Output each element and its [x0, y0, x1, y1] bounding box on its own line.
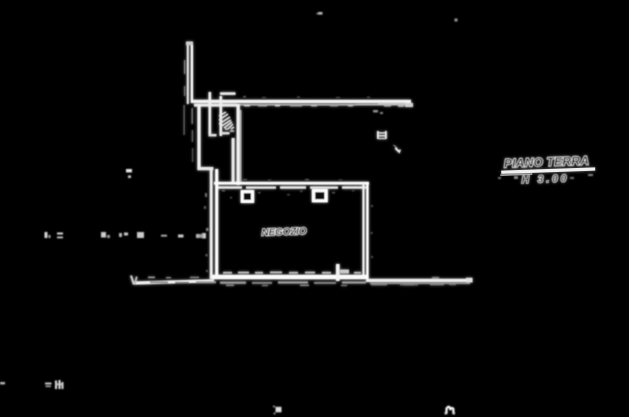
svg-text:PIANO TERRA: PIANO TERRA [504, 154, 590, 171]
svg-text:NEGOZIO: NEGOZIO [261, 226, 307, 239]
